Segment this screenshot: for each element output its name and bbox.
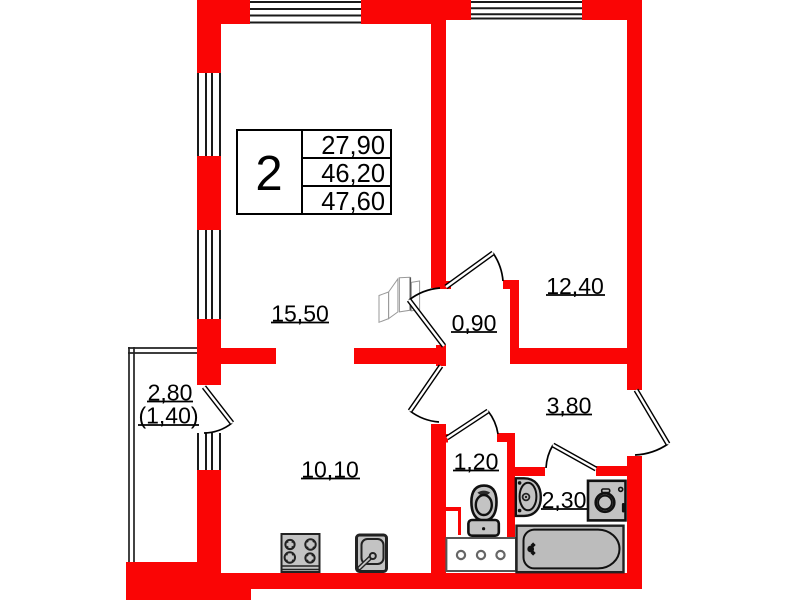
svg-text:47,60: 47,60 xyxy=(321,188,385,216)
svg-text:2: 2 xyxy=(255,147,282,201)
svg-text:27,90: 27,90 xyxy=(321,132,385,160)
svg-text:46,20: 46,20 xyxy=(321,160,385,188)
